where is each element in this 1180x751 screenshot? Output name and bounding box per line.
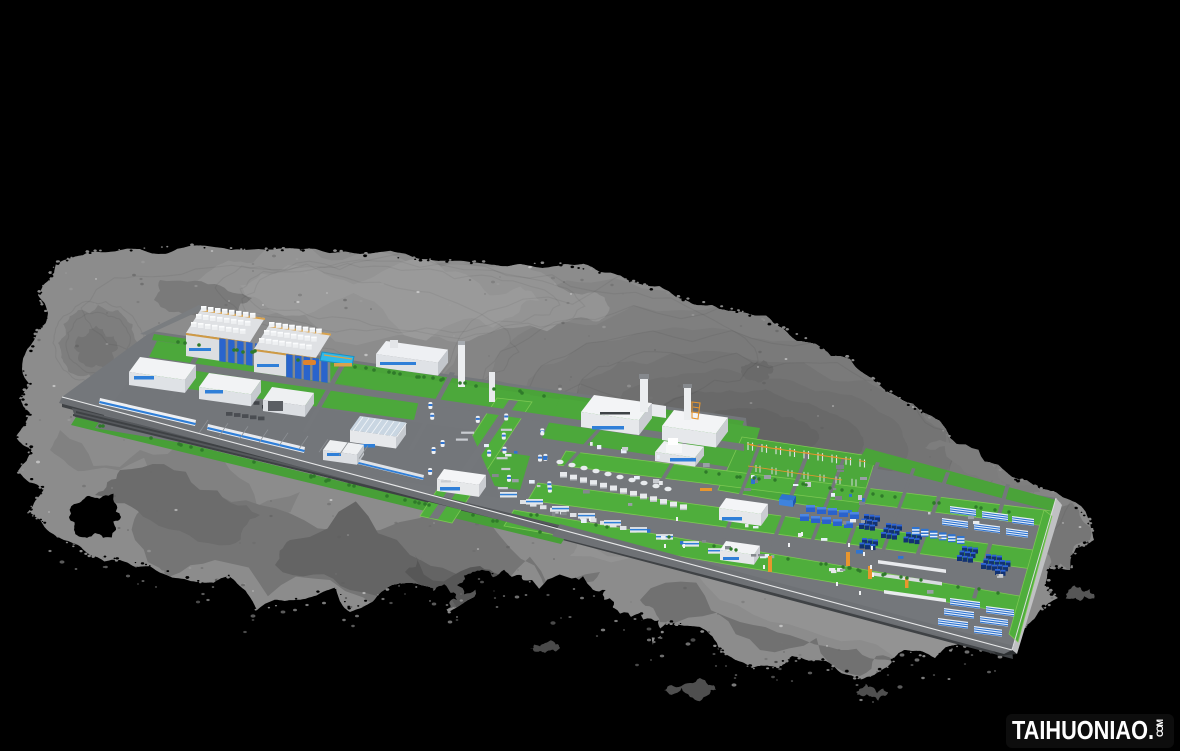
svg-text:TAIHUONIAO.: TAIHUONIAO. xyxy=(1012,715,1154,745)
svg-text:COM: COM xyxy=(1155,719,1165,737)
